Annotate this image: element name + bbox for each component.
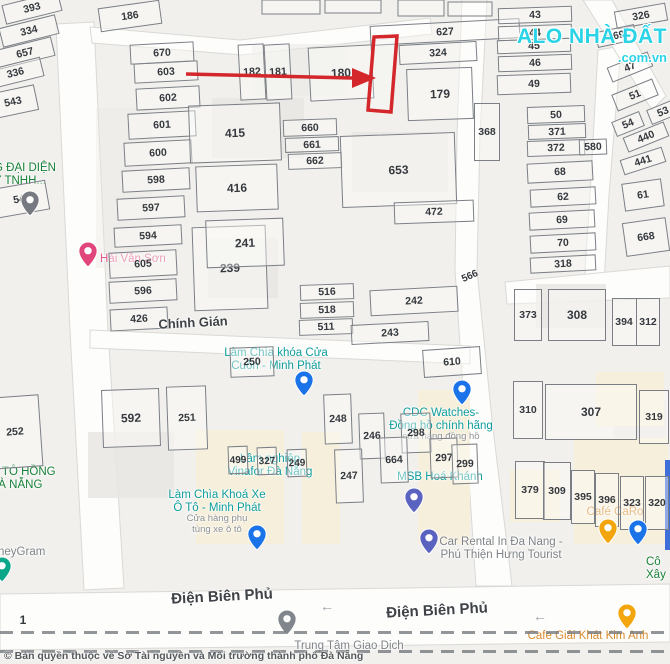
parcel-number: 297 <box>435 452 453 465</box>
parcel-182: 182 <box>238 43 267 100</box>
parcel-number: 592 <box>121 411 142 426</box>
parcel-69: 69 <box>529 209 596 230</box>
parcel-598: 598 <box>121 167 190 193</box>
parcel-number: 43 <box>529 9 541 21</box>
parcel-number: 179 <box>430 87 451 102</box>
map-canvas[interactable]: G ĐẠI DIỆNY TNHH...Hải Vân SơnLàm Chìa k… <box>0 0 670 664</box>
parcel-597: 597 <box>116 195 185 221</box>
parcel-number: 324 <box>429 47 447 60</box>
parcel-247: 247 <box>334 449 364 504</box>
parcel-number: 312 <box>639 316 657 328</box>
parcel-number: 373 <box>519 309 537 321</box>
parcel-number: 627 <box>436 26 454 39</box>
parcel-309: 309 <box>543 462 571 520</box>
parcel-592: 592 <box>101 388 161 448</box>
parcel-number: 668 <box>636 230 655 244</box>
parcel-number: 54 <box>620 116 635 132</box>
parcel-number: 664 <box>385 454 403 467</box>
parcel-368: 368 <box>474 103 500 161</box>
parcel-number: 601 <box>153 119 171 132</box>
parcel-70: 70 <box>530 232 597 253</box>
parcel-number: 68 <box>554 166 566 179</box>
parcel-number: 395 <box>574 491 592 503</box>
parcel-number: 543 <box>3 94 23 109</box>
parcel-number: 605 <box>134 258 152 271</box>
road-direction-arrow: ← <box>320 598 334 614</box>
parcel-number: 597 <box>142 202 160 215</box>
parcel-379: 379 <box>515 461 545 519</box>
parcel-518: 518 <box>300 301 355 319</box>
car-rental-pin-icon[interactable] <box>419 528 439 555</box>
parcel-number: 246 <box>363 430 381 443</box>
parcel-395: 395 <box>571 470 595 524</box>
parcel-number: 662 <box>306 155 324 168</box>
parcel-number: 396 <box>598 494 616 506</box>
parcel-number: 186 <box>120 9 139 23</box>
parcel-605: 605 <box>108 249 177 279</box>
parcel-319: 319 <box>639 390 669 444</box>
parcel-number: 580 <box>584 141 602 154</box>
parcel-307: 307 <box>545 384 637 440</box>
parcel-number: 518 <box>318 304 336 317</box>
parcel-number: 661 <box>303 138 321 151</box>
car-key-shop-pin-icon[interactable] <box>247 524 267 551</box>
parcel-308: 308 <box>548 289 606 341</box>
parcel-unlabeled <box>448 2 492 16</box>
parcel-number: 603 <box>157 66 175 79</box>
road-left <box>56 22 124 590</box>
hai-van-son-pin-icon[interactable] <box>78 241 98 268</box>
parcel-179: 179 <box>406 67 474 121</box>
parcel-number: 242 <box>405 295 423 308</box>
watermark: ALO NHÀ ĐẤT .com.vn <box>517 25 667 65</box>
parcel-number: 596 <box>134 285 152 298</box>
poi-label-subline: Cửa hàng phụ <box>168 514 265 525</box>
parcel-number: 670 <box>153 47 171 60</box>
road-direction-arrow: ← <box>533 608 547 624</box>
parcel-number: 334 <box>19 23 39 39</box>
parcel-number: 511 <box>317 321 334 334</box>
parcel-653: 653 <box>339 132 456 208</box>
parcel-664: 664 <box>379 437 409 484</box>
parcel-241: 241 <box>205 218 285 269</box>
parcel-number: 319 <box>645 411 663 423</box>
parcel-number: 51 <box>627 87 642 103</box>
parcel-number: 394 <box>615 316 633 328</box>
parcel-number: 516 <box>318 286 336 299</box>
xay-lap-label[interactable]: CôXây Lắ <box>646 556 670 581</box>
copyright-text: © Bản quyền thuộc về Sở Tài nguyên và Mô… <box>4 650 363 662</box>
watch-shop-pin-icon[interactable] <box>452 379 472 406</box>
parcel-number: 320 <box>648 497 666 509</box>
parcel-662: 662 <box>288 152 343 170</box>
parcel-394: 394 <box>612 298 637 346</box>
parcel-number: 69 <box>556 214 568 227</box>
parcel-180: 180 <box>308 44 375 101</box>
parcel-number: 298 <box>407 427 425 440</box>
parcel-610: 610 <box>422 346 482 378</box>
parcel-250: 250 <box>229 346 274 378</box>
parcel-number: 598 <box>147 174 165 187</box>
parcel-601: 601 <box>127 110 196 140</box>
watermark-title: ALO NHÀ ĐẤT <box>517 25 667 49</box>
parcel-number: 372 <box>547 142 565 155</box>
parcel-number: 594 <box>139 230 157 243</box>
parcel-181: 181 <box>264 43 293 100</box>
parcel-number: 336 <box>5 65 25 81</box>
parcel-number: 368 <box>478 126 496 138</box>
parcel-number: 251 <box>178 412 196 425</box>
shopping-pin-icon[interactable] <box>628 519 648 546</box>
parcel-661: 661 <box>285 136 339 153</box>
parcel-61: 61 <box>621 178 665 211</box>
parcel-415: 415 <box>188 102 282 163</box>
parcel-number: 371 <box>548 125 566 138</box>
poi-label-line: ĐÀ NẴNG <box>0 479 56 492</box>
parcel-number: 53 <box>655 104 670 120</box>
parcel-594: 594 <box>114 224 183 248</box>
cafe-caro-pin-icon[interactable] <box>598 518 618 545</box>
parcel-number: 299 <box>456 458 474 471</box>
car-rental-label[interactable]: Car Rental In Đa Nang -Phú Thiện Hưng To… <box>439 536 562 561</box>
parcel-number: 323 <box>623 497 641 509</box>
parcel-number: 62 <box>557 191 569 204</box>
parcel-511: 511 <box>299 318 354 336</box>
poi-label-line: Cô <box>646 556 670 569</box>
parcel-number: 393 <box>22 0 42 16</box>
parcel-number: 50 <box>550 108 562 120</box>
parcel-50: 50 <box>527 104 586 123</box>
parcel-252: 252 <box>0 394 43 469</box>
parcel-number: 1 <box>20 613 27 627</box>
parcel-312: 312 <box>636 298 660 346</box>
parcel-number: 70 <box>557 237 569 250</box>
parcel-number: 660 <box>301 121 319 134</box>
parcel-number: 318 <box>554 258 572 271</box>
parcel-number: 415 <box>225 126 246 141</box>
poi-label-line: Phú Thiện Hưng Tourist <box>439 549 562 562</box>
parcel-499: 499 <box>228 446 249 475</box>
parcel-number: 653 <box>388 163 409 178</box>
parcel-unlabeled <box>325 0 381 13</box>
parcel-416: 416 <box>195 164 279 213</box>
parcel-580: 580 <box>579 139 608 156</box>
place-544-pin-icon[interactable] <box>20 190 40 217</box>
key-shop-pin-icon[interactable] <box>294 370 314 397</box>
parcel-number: 326 <box>631 9 650 24</box>
parcel-number: 472 <box>425 206 443 219</box>
parcel-number: 241 <box>235 236 256 251</box>
poi-label-line: Làm Chìa Khoá Xe <box>168 489 265 502</box>
parcel-68: 68 <box>527 160 594 183</box>
watermark-domain: .com.vn <box>517 50 667 65</box>
parcel-number: 49 <box>528 78 540 90</box>
parcel-number: 307 <box>581 405 601 419</box>
parcel-43: 43 <box>498 6 573 25</box>
parcel-number: 426 <box>130 313 148 326</box>
parcel-number: 499 <box>229 454 246 466</box>
bank-pin-icon[interactable] <box>404 487 424 514</box>
parcel-number: 181 <box>269 66 287 79</box>
parcel-373: 373 <box>514 289 542 341</box>
parcel-299: 299 <box>451 444 478 485</box>
poi-label-line: G ĐẠI DIỆN <box>0 162 56 175</box>
parcel-number: 602 <box>159 92 177 105</box>
parcel-number: 309 <box>548 485 566 497</box>
parcel-1: 1 <box>16 613 30 627</box>
parcel-603: 603 <box>134 60 199 83</box>
poi-label-line: Xây Lắ <box>646 569 670 582</box>
parcel-242: 242 <box>369 286 458 317</box>
parcel-668: 668 <box>622 217 670 257</box>
parcel-unlabeled <box>262 0 320 14</box>
parcel-number: 416 <box>227 181 248 196</box>
parcel-number: 252 <box>6 425 24 438</box>
parcel-596: 596 <box>108 278 177 304</box>
parcel-number: 610 <box>443 355 461 368</box>
parcel-number: 247 <box>340 470 358 483</box>
parcel-number: 327 <box>258 455 275 467</box>
parcel-249: 249 <box>287 449 308 478</box>
parcel-660: 660 <box>283 118 338 137</box>
parcel-number: 180 <box>331 65 352 80</box>
parcel-248: 248 <box>323 394 353 445</box>
parcel-number: 441 <box>633 153 653 170</box>
parcel-number: 61 <box>636 188 649 202</box>
parcel-49: 49 <box>497 73 572 96</box>
parcel-310: 310 <box>513 381 543 439</box>
poi-label-line: Car Rental In Đa Nang - <box>439 536 562 549</box>
parcel-516: 516 <box>300 283 355 301</box>
parcel-number: 308 <box>567 308 587 322</box>
parcel-243: 243 <box>351 321 430 345</box>
parcel-251: 251 <box>166 385 208 450</box>
parcel-372: 372 <box>527 139 586 157</box>
parcel-number: 250 <box>243 356 261 369</box>
railway-dashes <box>0 631 670 634</box>
moneygram-pin-icon[interactable] <box>0 556 12 583</box>
parcel-number: 182 <box>243 66 261 79</box>
parcel-number: 249 <box>288 457 305 469</box>
parcel-324: 324 <box>399 41 478 65</box>
parcel-62: 62 <box>530 186 597 207</box>
parcel-number: 248 <box>329 413 347 426</box>
parcel-320: 320 <box>645 476 669 530</box>
parcel-number: 310 <box>519 404 537 416</box>
parcel-472: 472 <box>394 200 475 225</box>
oto-hong-label[interactable]: Ô TÔ HỒNGĐÀ NẴNG <box>0 466 56 491</box>
parcel-327: 327 <box>257 447 278 476</box>
cafe-kim-anh-pin-icon[interactable] <box>617 603 637 630</box>
parcel-number: 243 <box>381 327 399 340</box>
parcel-600: 600 <box>123 139 192 167</box>
parcel-number: 600 <box>149 147 167 160</box>
parcel-unlabeled <box>398 0 444 16</box>
parcel-371: 371 <box>528 122 586 139</box>
parcel-number: 379 <box>521 484 539 496</box>
